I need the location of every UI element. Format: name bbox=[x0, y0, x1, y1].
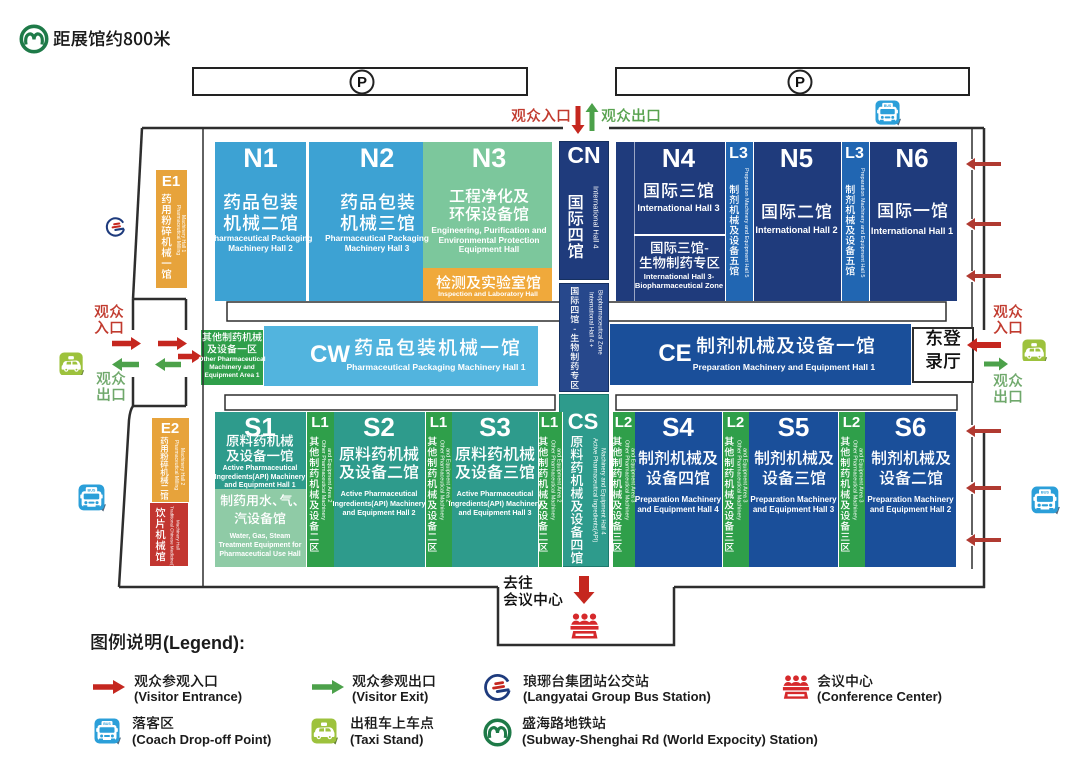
svg-text:P: P bbox=[357, 74, 367, 91]
svg-text:P: P bbox=[795, 74, 805, 91]
